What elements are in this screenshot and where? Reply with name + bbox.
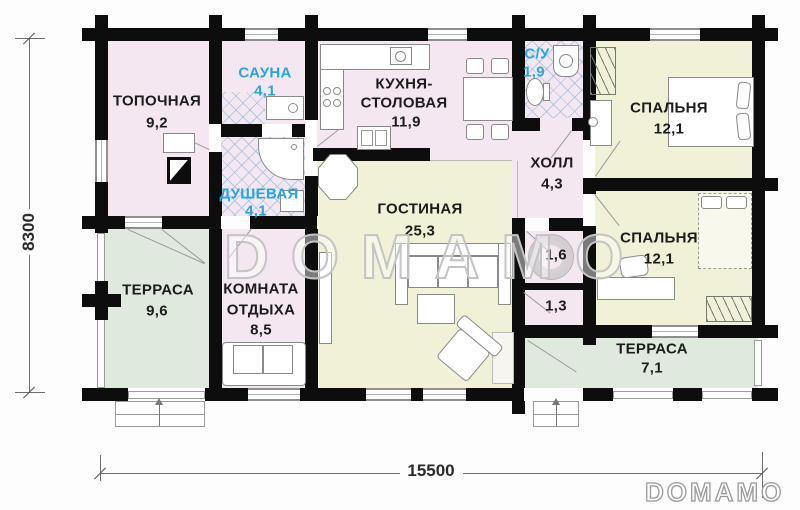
wall-bottom [673,388,702,401]
terrace-railing [613,391,673,399]
chair-icon [466,58,484,74]
log-cross [95,281,108,320]
room-label-sauna: САУНА [238,65,291,82]
dresser-knob [588,117,598,127]
dimension-height: 8300 [19,209,39,255]
boundary-line [517,161,518,218]
log-end [765,28,778,41]
entrance-arrow [159,404,160,426]
room-label-bedroom1: СПАЛЬНЯ [630,100,708,117]
dimension-width: 15500 [403,461,458,481]
stove-icon [333,87,341,95]
log-end [95,15,108,28]
terrace-railing [128,391,205,399]
room-area-sauna: 4,1 [254,83,276,100]
room-label-lounge-2: ОТДЫХА [227,302,295,319]
log-end [765,325,778,338]
room-area-dushevaya: 4,1 [245,203,267,220]
room-label-kitchen-2: СТОЛОВАЯ [361,95,448,112]
window [428,28,467,41]
terrace-railing [702,391,752,399]
entrance-arrow [556,404,557,426]
sink-unit-bowl [375,130,387,146]
brand-logo: DOMAMO [645,477,784,508]
wall-bedroom-divider [583,178,765,191]
wall-bottom [583,388,613,401]
window [423,388,466,401]
room-area-bedroom1: 12,1 [654,121,684,138]
wall-bottom [205,388,248,401]
wall-su-bottom [572,118,583,131]
room-area-bedroom2: 12,1 [644,251,674,268]
kitchen-counter [320,44,430,70]
wall [305,41,318,120]
room-label-hall: ХОЛЛ [530,155,573,172]
wall-bedroom2-bottom [698,325,765,338]
pillow-icon [701,196,722,209]
pillow-icon [726,196,747,209]
entrance-arrow-tip [155,398,163,405]
window [366,388,411,401]
floor-plan: ТОПОЧНАЯ 9,2 САУНА 4,1 ДУШЕВАЯ 4,1 КУХНЯ… [0,0,800,510]
room-area-su: 1,9 [523,64,545,81]
room-area-topochnaya: 9,2 [146,115,168,132]
sofa-cushion [233,345,263,374]
wall-bottom [752,388,765,401]
window [248,388,300,401]
wall-bottom [95,388,128,401]
terrace-door-opening [125,216,162,229]
room-label-terrace-right: ТЕРРАСА [616,341,688,358]
wall-su-bottom [512,118,540,131]
wall-bedroom2-bottom [512,325,652,338]
room-label-topochnaya: ТОПОЧНАЯ [113,93,201,110]
boundary-line [430,160,512,161]
stove-icon [323,87,331,95]
dimension-line-horizontal [100,473,400,474]
chair-icon [466,124,484,140]
window [95,140,108,182]
log-end [765,178,778,191]
sofa-cushion [263,345,293,374]
wardrobe-icon [590,47,616,95]
dimension-ext [100,455,101,481]
wall-top [700,28,765,41]
coffee-table-icon [417,294,455,324]
wall [209,152,222,216]
chair-icon [491,124,509,140]
log-end [82,28,95,41]
wall [95,216,125,229]
stove-icon [333,99,341,107]
room-area-terrace-right: 7,1 [641,360,663,377]
stove-icon [323,99,331,107]
boiler-icon [167,157,191,184]
wall [209,41,222,124]
toilet-tank [543,83,550,101]
window [650,28,700,41]
dining-table-icon [463,77,513,121]
wall-top [95,28,245,41]
chair-icon [491,58,509,74]
wall [209,229,222,388]
room-label-living: ГОСТИНАЯ [377,201,462,218]
room-area-closet-13: 1,3 [545,298,567,315]
room-area-hall: 4,3 [541,176,563,193]
log-end [512,401,525,414]
wall [221,124,262,137]
window [652,325,698,338]
dimension-line-horizontal [463,473,762,474]
entrance-arrow-tip [552,398,560,405]
room-label-terrace-left: ТЕРРАСА [122,282,194,299]
wall [292,124,305,137]
kitchen-sink-bowl [395,51,406,62]
log-end [209,15,222,28]
sauna-bench-icon [266,96,304,120]
wall-top [467,28,650,41]
wall [305,176,318,216]
terrace-railing [754,340,762,386]
washbasin-bowl [559,54,573,68]
window [245,28,278,41]
sink-unit-bowl [361,130,373,146]
wall-left [95,41,108,233]
log-end [512,15,525,28]
sauna-ladle-icon [288,103,298,113]
log-end [752,15,765,28]
wall-top [278,28,428,41]
log-end [765,388,778,401]
wardrobe-icon [706,296,752,322]
room-area-terrace-left: 9,6 [146,303,168,320]
wall [162,216,221,229]
room-label-kitchen-1: КУХНЯ- [375,76,432,93]
room-area-lounge: 8,5 [250,322,272,339]
toilet-icon [526,78,544,106]
watermark: DOMAMO [224,222,645,293]
log-end [305,15,318,28]
wall-bottom [466,388,524,401]
desk-icon [163,133,195,153]
room-label-su: С/У [524,46,549,63]
log-end [583,15,596,28]
room-area-kitchen: 11,9 [391,114,421,131]
pillow-icon [736,112,752,140]
wall-bottom [300,388,366,401]
wall-bottom [411,388,423,401]
shower-head-icon [291,144,297,150]
room-label-dushevaya: ДУШЕВАЯ [219,186,298,203]
